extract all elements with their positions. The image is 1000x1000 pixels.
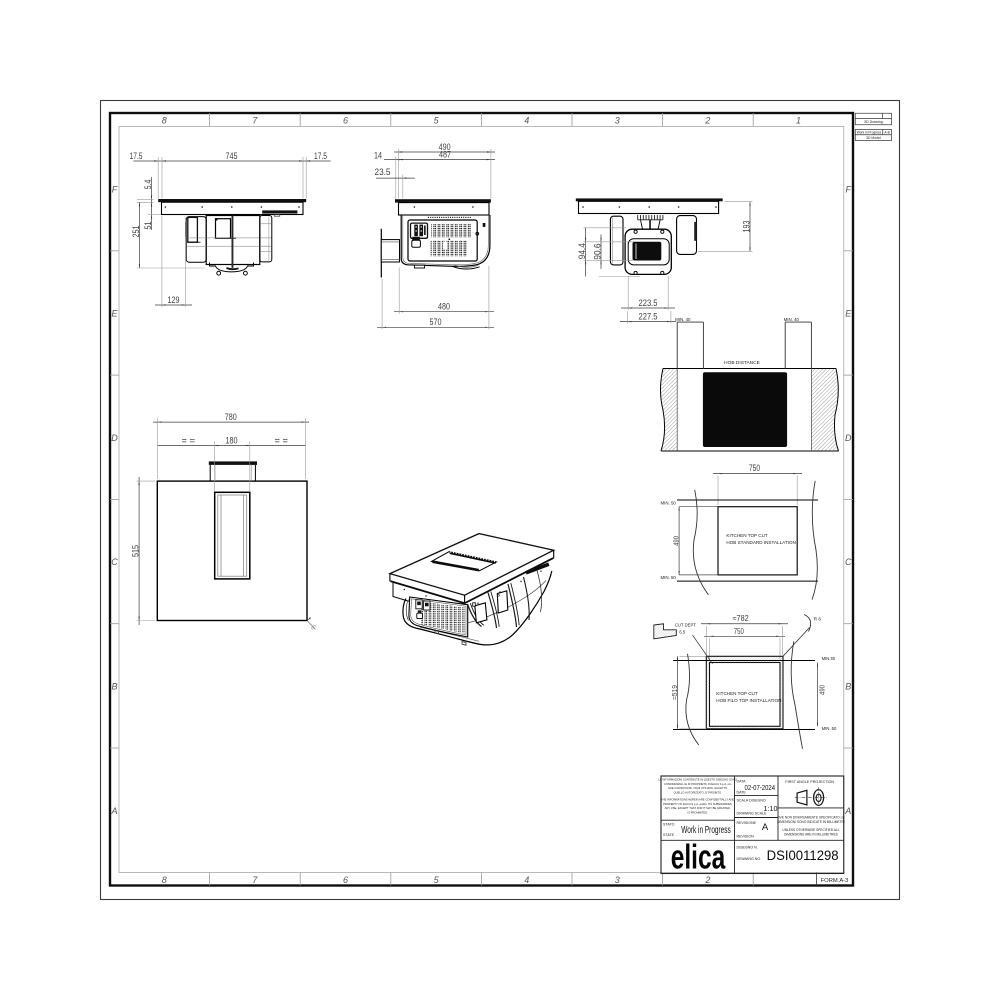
svg-text:MIN. 50: MIN. 50: [661, 575, 677, 580]
svg-text:129: 129: [168, 295, 180, 305]
svg-text:KITCHEN TOP CUT: KITCHEN TOP CUT: [726, 533, 768, 538]
svg-text:251: 251: [131, 226, 141, 238]
svg-text:23.5: 23.5: [375, 167, 391, 177]
svg-text:REVISIONE: REVISIONE: [737, 821, 757, 825]
svg-text:QUELLO AUTORIZZATO, E' PROIBIT: QUELLO AUTORIZZATO, E' PROIBITO.: [674, 790, 723, 794]
svg-text:1: 1: [796, 116, 801, 126]
svg-text:570: 570: [430, 317, 442, 327]
svg-text:REVISION: REVISION: [737, 835, 755, 839]
svg-text:Work in Progress: Work in Progress: [857, 131, 882, 135]
svg-text:HOB STANDARD INSTALLATION: HOB STANDARD INSTALLATION: [726, 540, 795, 545]
svg-text:R5: R5: [310, 623, 318, 631]
svg-text:FORM.A-3: FORM.A-3: [821, 878, 849, 884]
svg-text:IS PROHIBITED.: IS PROHIBITED.: [687, 810, 708, 814]
svg-text:3D Drawing: 3D Drawing: [864, 120, 883, 124]
svg-text:480: 480: [438, 302, 450, 312]
svg-text:94.4: 94.4: [577, 243, 587, 259]
svg-text:1:10: 1:10: [764, 804, 778, 813]
svg-text:51: 51: [143, 222, 153, 230]
svg-text:3D Model: 3D Model: [866, 136, 881, 140]
svg-text:2: 2: [704, 116, 710, 126]
svg-text:490: 490: [817, 685, 826, 695]
svg-text:DSI0011298: DSI0011298: [767, 848, 839, 863]
svg-text:SCALA DISEGNO: SCALA DISEGNO: [737, 799, 766, 803]
svg-text:KITCHEN TOP CUT: KITCHEN TOP CUT: [716, 691, 758, 696]
svg-text:17.5: 17.5: [130, 151, 143, 161]
svg-text:DISEGNO N.: DISEGNO N.: [737, 846, 758, 850]
svg-text:DIMENSIONI SONO INDICATE IN MI: DIMENSIONI SONO INDICATE IN MILLIMETRI: [777, 820, 845, 824]
svg-text:F: F: [112, 184, 118, 194]
svg-text:193: 193: [741, 221, 751, 233]
svg-text:3: 3: [615, 116, 620, 126]
svg-text:ANY USE, EXCEPT THAT FOR IT MA: ANY USE, EXCEPT THAT FOR IT MAY BE GRANT…: [665, 806, 731, 810]
svg-text:6.5: 6.5: [679, 629, 685, 634]
svg-text:C: C: [111, 557, 118, 567]
svg-text:MIN. 40: MIN. 40: [675, 317, 691, 322]
svg-text:R 6: R 6: [814, 616, 822, 621]
svg-text:6: 6: [343, 116, 348, 126]
svg-text:A-B: A-B: [884, 131, 889, 135]
svg-text:MIN.50: MIN.50: [822, 656, 836, 661]
svg-text:4: 4: [524, 116, 529, 126]
svg-text:227.5: 227.5: [639, 311, 658, 321]
svg-text:6: 6: [343, 875, 348, 885]
svg-text:750: 750: [734, 627, 744, 636]
svg-text:8: 8: [162, 116, 167, 126]
svg-text:490: 490: [672, 536, 681, 546]
svg-text:C: C: [845, 557, 852, 567]
svg-text:SUE CONSOCIATE. OGNI UTILIZZO,: SUE CONSOCIATE. OGNI UTILIZZO, ECCETTO: [668, 786, 727, 790]
svg-text:HOB DISTANCE: HOB DISTANCE: [724, 360, 760, 366]
svg-text:DIMENSIONS ARE IN MILLIMETRES: DIMENSIONS ARE IN MILLIMETRES: [784, 832, 838, 836]
svg-text:750: 750: [749, 463, 760, 473]
svg-text:E: E: [845, 309, 852, 319]
svg-text:B: B: [111, 682, 117, 692]
svg-text:B: B: [845, 682, 851, 692]
svg-text:DRAWING NO.: DRAWING NO.: [737, 857, 762, 861]
svg-text:F: F: [846, 184, 852, 194]
svg-text:CUT DEPT: CUT DEPT: [675, 623, 696, 628]
svg-text:OVE NON DIVERSAMENTE SPECIFICA: OVE NON DIVERSAMENTE SPECIFICATO LE: [777, 816, 844, 820]
svg-text:3: 3: [615, 875, 620, 885]
svg-text:MIN. 50: MIN. 50: [822, 726, 837, 731]
svg-text:Work in Progress: Work in Progress: [681, 825, 731, 836]
svg-text:180: 180: [226, 435, 238, 445]
svg-text:A: A: [762, 822, 769, 833]
svg-text:02-07-2024: 02-07-2024: [745, 783, 776, 792]
svg-text:14: 14: [374, 150, 382, 160]
svg-text:515: 515: [131, 545, 141, 557]
svg-text:D: D: [845, 433, 852, 443]
svg-text:780: 780: [225, 412, 237, 422]
svg-text:≈519: ≈519: [670, 685, 679, 700]
svg-text:STATO: STATO: [663, 823, 675, 827]
svg-text:A: A: [844, 806, 851, 816]
svg-text:PROPERTY OF ELICA S.p.A. and/o: PROPERTY OF ELICA S.p.A. and/or ITS SUBS…: [663, 802, 732, 806]
svg-text:7: 7: [252, 875, 258, 885]
svg-text:223.5: 223.5: [639, 298, 658, 308]
svg-text:17.5: 17.5: [314, 151, 327, 161]
svg-text:745: 745: [226, 151, 238, 161]
svg-text:THE INFORMATIONS HEREIN ARE CO: THE INFORMATIONS HEREIN ARE CONFIDENTIAL…: [661, 798, 734, 802]
svg-text:HOB FILO TOP INSTALLATION: HOB FILO TOP INSTALLATION: [716, 698, 781, 703]
svg-text:5: 5: [434, 116, 440, 126]
svg-text:D: D: [111, 433, 118, 443]
svg-text:8: 8: [162, 875, 167, 885]
svg-text:elica: elica: [671, 838, 726, 876]
svg-text:≈782: ≈782: [733, 614, 749, 623]
svg-text:LE INFORMAZIONI CONTENUTE IN Q: LE INFORMAZIONI CONTENUTE IN QUESTO DISE…: [659, 778, 737, 782]
svg-text:FIRST ANGLE PROJECTION: FIRST ANGLE PROJECTION: [785, 780, 834, 784]
svg-text:5: 5: [434, 875, 440, 885]
svg-text:4: 4: [524, 875, 529, 885]
svg-text:E: E: [111, 309, 118, 319]
svg-text:CONFIDENZIALI E DI PROPRIETA': CONFIDENZIALI E DI PROPRIETA' DI ELICA S…: [664, 782, 732, 786]
svg-text:A: A: [110, 806, 117, 816]
svg-text:MIN. 50: MIN. 50: [661, 501, 677, 506]
svg-text:487: 487: [439, 149, 451, 159]
svg-text:STATE: STATE: [663, 833, 675, 837]
svg-text:MIN. 40: MIN. 40: [784, 317, 800, 322]
svg-text:5.4: 5.4: [143, 180, 153, 190]
svg-text:90.6: 90.6: [593, 244, 603, 260]
svg-text:7: 7: [252, 116, 258, 126]
